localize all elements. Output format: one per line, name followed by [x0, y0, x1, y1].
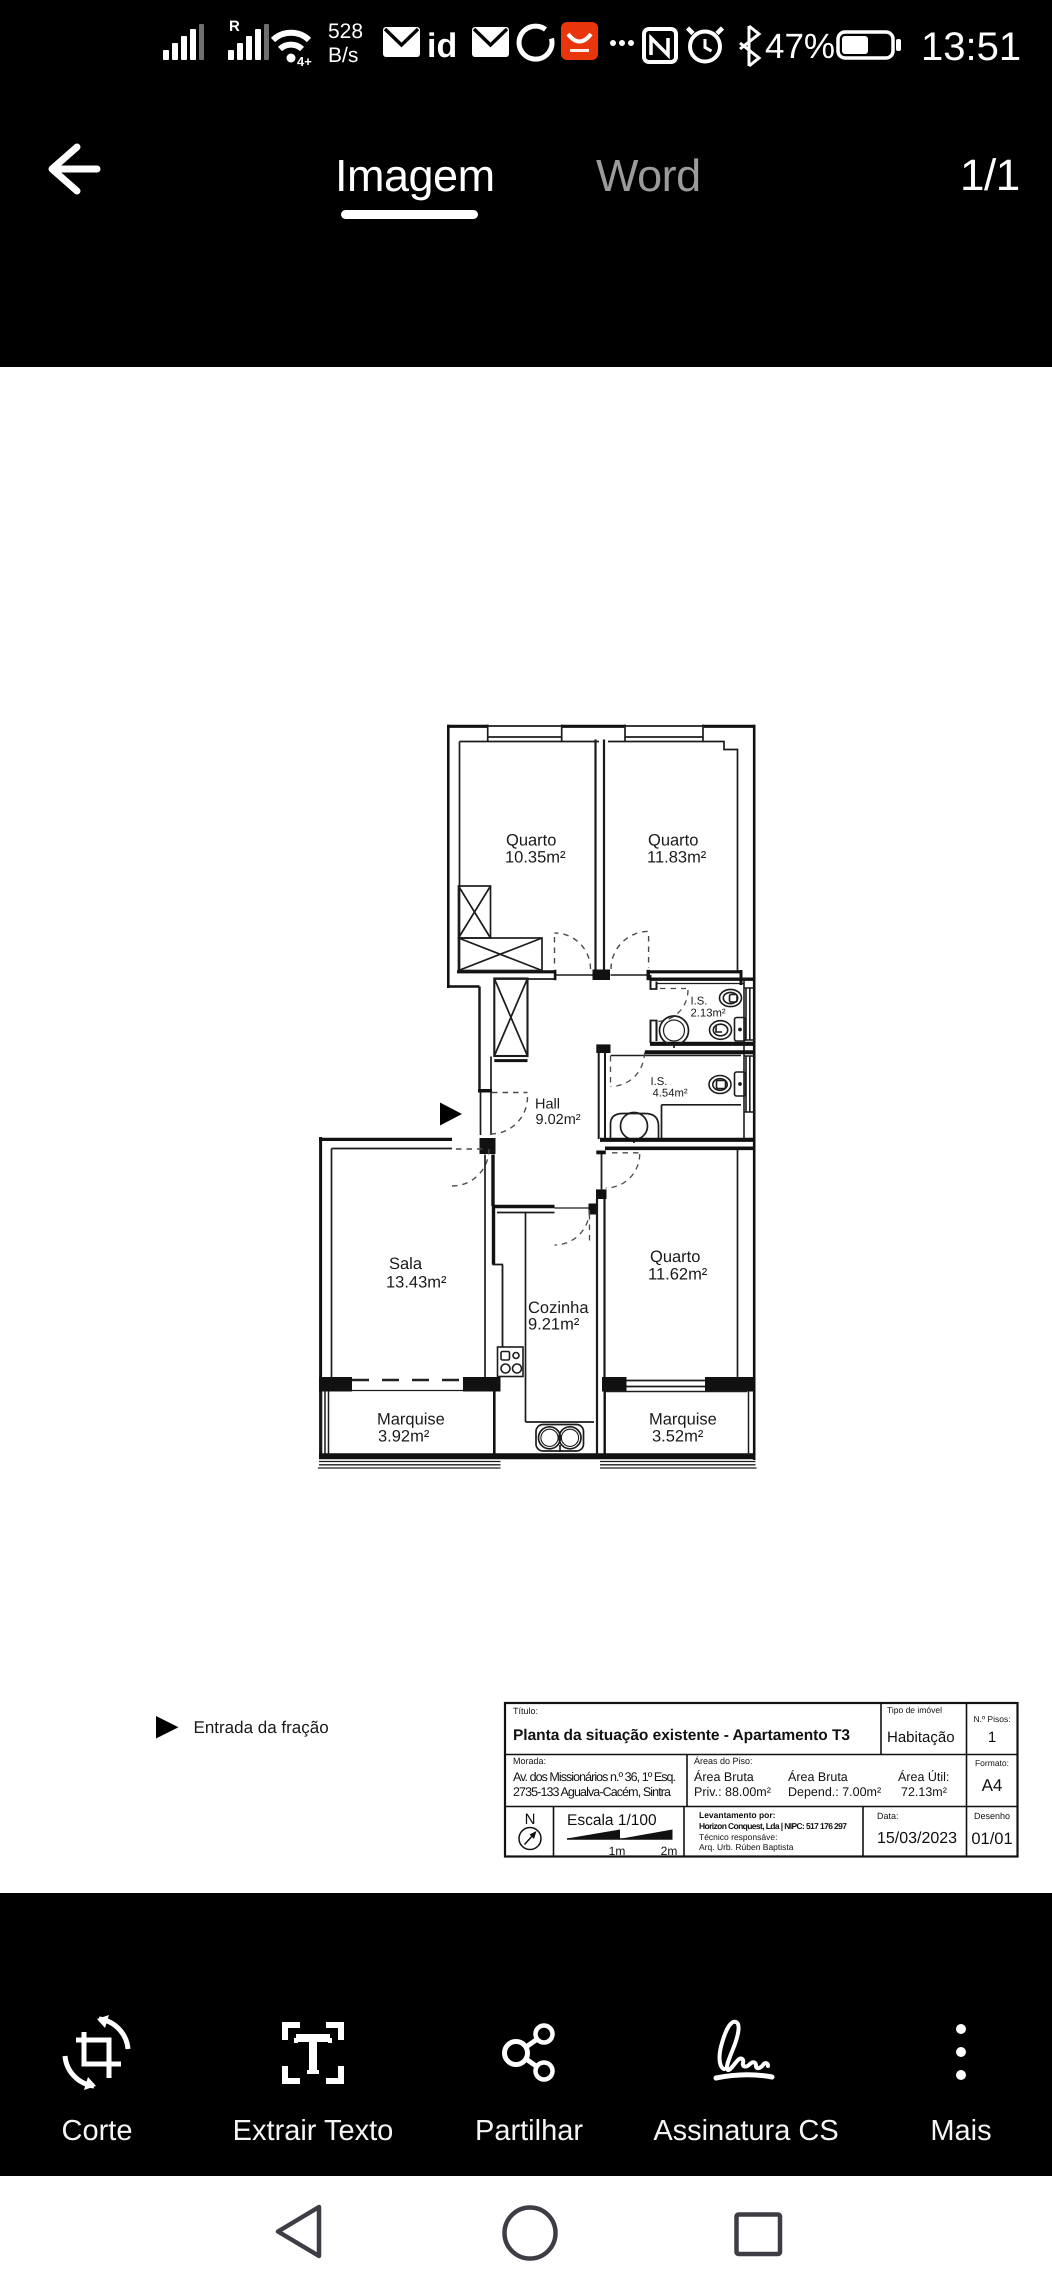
svg-text:id: id	[427, 27, 457, 65]
svg-text:Arq. Urb. Rúben Baptista: Arq. Urb. Rúben Baptista	[699, 1842, 794, 1852]
svg-text:Quarto: Quarto	[506, 832, 556, 850]
svg-text:Marquise: Marquise	[649, 1411, 717, 1429]
svg-text:3.92m²: 3.92m²	[378, 1428, 430, 1446]
svg-text:Quarto: Quarto	[650, 1248, 700, 1266]
svg-text:9.21m²: 9.21m²	[528, 1316, 580, 1334]
svg-text:47%: 47%	[765, 27, 835, 66]
svg-text:N: N	[525, 1811, 536, 1828]
svg-text:Depend.: 7.00m²: Depend.: 7.00m²	[788, 1785, 881, 1799]
svg-text:Escala 1/100: Escala 1/100	[567, 1812, 657, 1829]
svg-text:4.54m²: 4.54m²	[653, 1088, 688, 1100]
svg-text:4+: 4+	[297, 54, 312, 69]
svg-text:I.S.: I.S.	[651, 1076, 668, 1088]
svg-text:Morada:: Morada:	[513, 1756, 546, 1766]
svg-text:11.62m²: 11.62m²	[648, 1266, 708, 1284]
svg-text:I.S.: I.S.	[691, 996, 708, 1008]
svg-text:Horizon Conquest, Lda | NIPC:: Horizon Conquest, Lda | NIPC: 517 176 29…	[699, 1821, 847, 1831]
svg-text:2m: 2m	[661, 1844, 678, 1858]
svg-text:Título:: Título:	[513, 1706, 538, 1716]
svg-text:R: R	[229, 18, 240, 35]
svg-text:N.º Pisos:: N.º Pisos:	[973, 1714, 1010, 1724]
svg-text:11.83m²: 11.83m²	[647, 849, 707, 867]
svg-text:13.43m²: 13.43m²	[386, 1274, 447, 1292]
svg-text:Quarto: Quarto	[648, 832, 698, 850]
svg-text:72.13m²: 72.13m²	[901, 1785, 947, 1799]
svg-text:Desenho: Desenho	[974, 1811, 1010, 1821]
svg-text:2735-133 Agualva-Cacém, Sintra: 2735-133 Agualva-Cacém, Sintra	[513, 1785, 671, 1799]
svg-text:Área Bruta: Área Bruta	[788, 1770, 848, 1784]
svg-text:A4: A4	[982, 1776, 1003, 1795]
svg-text:Formato:: Formato:	[975, 1758, 1009, 1768]
svg-text:10.35m²: 10.35m²	[505, 849, 566, 867]
svg-text:Entrada da fração: Entrada da fração	[194, 1718, 329, 1737]
svg-text:1: 1	[988, 1729, 996, 1746]
svg-text:Levantamento por:: Levantamento por:	[699, 1810, 776, 1820]
svg-text:Área Bruta: Área Bruta	[694, 1770, 754, 1784]
svg-text:Av. dos Missionários n.º 36, 1: Av. dos Missionários n.º 36, 1º Esq.	[513, 1770, 676, 1784]
svg-text:3.52m²: 3.52m²	[652, 1428, 704, 1446]
svg-text:2.13m²: 2.13m²	[691, 1008, 726, 1020]
svg-text:01/01: 01/01	[971, 1830, 1012, 1848]
svg-text:Sala: Sala	[389, 1255, 423, 1273]
svg-text:1m: 1m	[609, 1844, 626, 1858]
svg-text:Habitação: Habitação	[887, 1729, 955, 1746]
svg-text:15/03/2023: 15/03/2023	[877, 1830, 957, 1847]
svg-text:Cozinha: Cozinha	[528, 1299, 589, 1317]
svg-text:Priv.: 88.00m²: Priv.: 88.00m²	[694, 1785, 771, 1799]
svg-text:528: 528	[328, 20, 363, 43]
svg-text:Hall: Hall	[535, 1097, 560, 1113]
svg-text:Área Útil:: Área Útil:	[898, 1770, 949, 1784]
svg-text:Marquise: Marquise	[377, 1411, 445, 1429]
svg-text:Técnico responsáve:: Técnico responsáve:	[699, 1832, 777, 1842]
svg-text:Áreas do Piso:: Áreas do Piso:	[694, 1756, 753, 1766]
svg-text:Tipo de imóvel: Tipo de imóvel	[887, 1705, 942, 1715]
svg-text:Planta da situação existente -: Planta da situação existente - Apartamen…	[513, 1727, 850, 1744]
svg-text:9.02m²: 9.02m²	[536, 1112, 581, 1128]
svg-text:B/s: B/s	[328, 44, 358, 67]
svg-text:13:51: 13:51	[921, 25, 1021, 69]
svg-text:Data:: Data:	[877, 1811, 899, 1821]
